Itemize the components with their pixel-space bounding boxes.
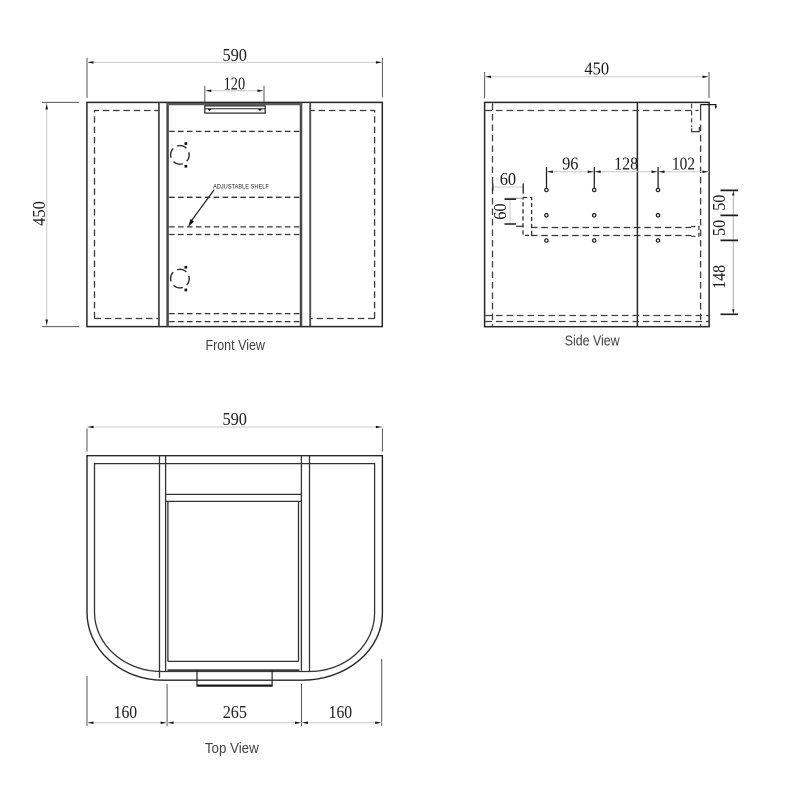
svg-text:96: 96 — [562, 154, 578, 174]
svg-text:590: 590 — [222, 409, 247, 429]
svg-text:160: 160 — [114, 702, 138, 722]
svg-text:Side View: Side View — [565, 333, 620, 349]
svg-text:50: 50 — [709, 220, 729, 236]
svg-text:102: 102 — [672, 154, 695, 174]
svg-text:120: 120 — [224, 73, 246, 93]
svg-text:ADJUSTABLE SHELF: ADJUSTABLE SHELF — [213, 184, 269, 190]
svg-text:60: 60 — [500, 169, 516, 189]
svg-text:450: 450 — [29, 201, 49, 226]
svg-text:50: 50 — [709, 195, 729, 211]
svg-text:60: 60 — [490, 203, 510, 219]
svg-text:450: 450 — [584, 59, 609, 79]
svg-text:Front View: Front View — [205, 338, 265, 354]
svg-text:128: 128 — [614, 154, 638, 174]
svg-text:Top View: Top View — [205, 741, 259, 757]
svg-text:590: 590 — [222, 45, 247, 65]
svg-text:160: 160 — [329, 702, 353, 722]
svg-text:265: 265 — [223, 702, 247, 722]
svg-text:148: 148 — [709, 265, 729, 289]
